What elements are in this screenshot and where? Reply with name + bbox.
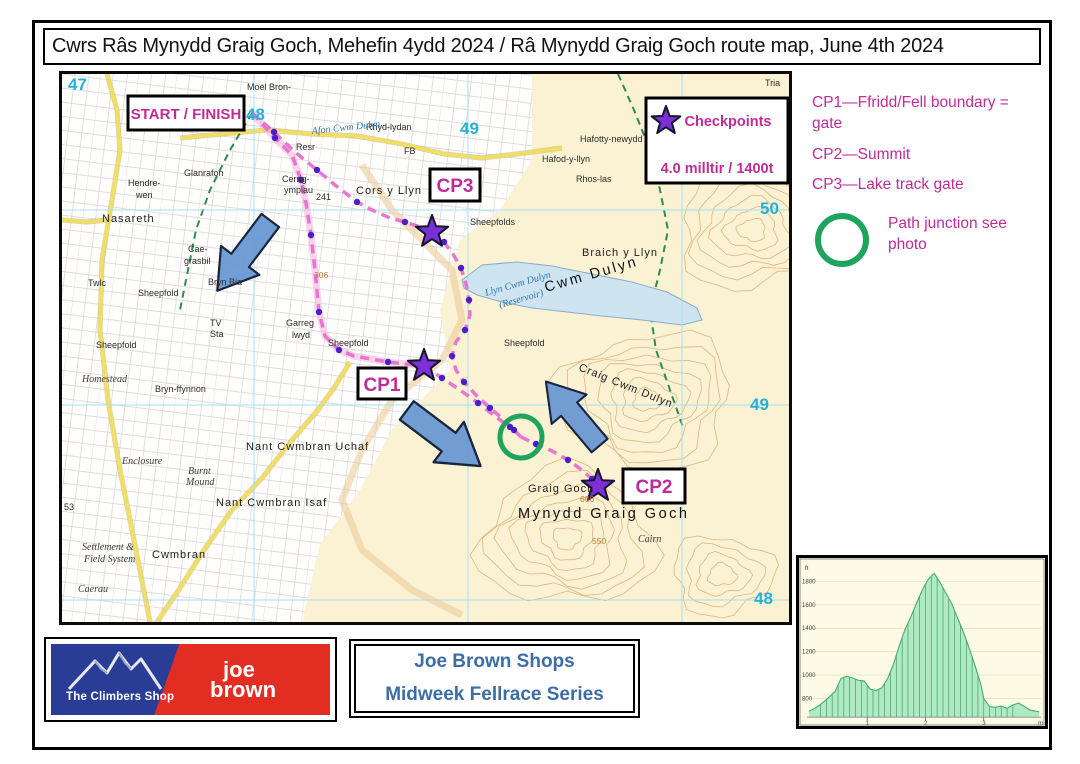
elevation-chart-canvas: 80010001200140016001800ft123m — [799, 558, 1045, 726]
series-box: Joe Brown Shops Midweek Fellrace Series — [349, 639, 640, 718]
map-label: ympiau — [284, 185, 313, 195]
map-label: Mynydd Graig Goch — [518, 506, 689, 522]
map-label: Hafod-y-llyn — [542, 154, 590, 164]
checkpoint-notes: CP1—Ffridd/Fell boundary = gate CP2—Summ… — [812, 92, 1056, 267]
map-label: Nasareth — [102, 213, 155, 225]
cp1-marker-box: CP1 — [358, 368, 406, 399]
map-label: Cwmbran — [152, 549, 206, 561]
y-tick-label: 800 — [802, 695, 813, 702]
start-finish-marker: START / FINISH — [128, 96, 244, 130]
cp2-note: CP2—Summit — [812, 144, 1056, 165]
start-finish-label: START / FINISH — [131, 106, 242, 123]
y-tick-label: 1200 — [802, 649, 816, 656]
map-label: Sheepfolds — [470, 217, 516, 227]
map-label: Glanrafon — [184, 168, 224, 178]
y-tick-label: 1400 — [802, 625, 816, 632]
map-label: Resr — [296, 142, 315, 152]
legend-title: Checkpoints — [684, 114, 771, 130]
y-axis-unit: ft — [805, 565, 809, 572]
series-title: Joe Brown Shops — [414, 651, 574, 673]
map-label: 606 — [580, 494, 594, 504]
map-label: Homestead — [81, 374, 128, 385]
cp3-marker-box: CP3 — [430, 169, 480, 201]
map-label: lwyd — [292, 330, 310, 340]
y-tick-label: 1800 — [802, 578, 816, 585]
sponsor-logo-box: The Climbers Shop joe brown — [44, 637, 337, 722]
map-label: Nant Cwmbran Isaf — [216, 497, 327, 509]
map-label: Burnt — [188, 466, 211, 477]
map-label: Nant Cwmbran Uchaf — [246, 441, 369, 453]
map-label: Cerrig- — [282, 174, 310, 184]
cp1-note: CP1—Ffridd/Fell boundary = gate — [812, 92, 1030, 135]
mountain-icon — [61, 647, 181, 693]
map-label: Sta — [210, 329, 224, 339]
map-label: Settlement & — [82, 542, 134, 553]
cp3-label: CP3 — [437, 176, 474, 197]
grid-number: 48 — [246, 105, 265, 124]
map-label: Rhos-las — [576, 174, 612, 184]
grid-number: 49 — [460, 119, 479, 138]
x-tick-label: 2 — [924, 720, 928, 726]
map-label: Tria — [765, 78, 780, 88]
map-label: FB — [404, 146, 416, 156]
x-tick-label: 1 — [866, 720, 870, 726]
map-label: 53 — [64, 502, 74, 512]
x-axis-unit: m — [1038, 720, 1043, 726]
map-label: Moel Bron- — [247, 82, 291, 92]
cp1-label: CP1 — [364, 375, 401, 396]
map-label: Enclosure — [121, 456, 163, 467]
junction-note: Path junction see photo — [888, 213, 1040, 256]
map-label: Bryn-ffynnon — [155, 384, 206, 394]
map-label: 306 — [314, 270, 328, 280]
map-label: Cors y Llyn — [356, 185, 422, 197]
series-box-inner: Joe Brown Shops Midweek Fellrace Series — [354, 644, 635, 713]
map-label: Sheepfold — [96, 340, 137, 350]
checkpoints-legend: Checkpoints 4.0 milltir / 1400t — [646, 98, 788, 183]
map-label: Bryn Bia — [208, 277, 242, 287]
legend-distance: 4.0 milltir / 1400t — [661, 161, 774, 177]
map-label: grasbil — [184, 256, 211, 266]
map-label: Hendre- — [128, 178, 161, 188]
y-tick-label: 1000 — [802, 672, 816, 679]
map-label: Cairn — [638, 534, 661, 545]
map-label: Mound — [185, 477, 215, 488]
route-map: Moel Bron-Rhyd-lydanFron-DulynHafotty-ne… — [59, 71, 792, 625]
map-label: Twlc — [88, 278, 107, 288]
map-label: Sheepfold — [504, 338, 545, 348]
map-label: Braich y Llyn — [582, 247, 658, 259]
climbers-shop-joe-brown-logo: The Climbers Shop joe brown — [51, 644, 330, 715]
grid-number: 49 — [750, 395, 769, 414]
x-tick-label: 3 — [982, 720, 986, 726]
map-label: 241 — [316, 192, 331, 202]
elevation-profile: 80010001200140016001800ft123m — [796, 555, 1048, 729]
joe-brown-line2: brown — [210, 680, 276, 700]
map-label: Sheepfold — [328, 338, 369, 348]
map-label: Garreg — [286, 318, 314, 328]
title-box: Cwrs Râs Mynydd Graig Goch, Mehefin 4ydd… — [43, 28, 1041, 65]
path-junction-icon — [815, 213, 869, 267]
junction-note-row: Path junction see photo — [812, 213, 1056, 267]
y-tick-label: 1600 — [802, 602, 816, 609]
grid-number: 48 — [754, 589, 773, 608]
cp3-note: CP3—Lake track gate — [812, 174, 1056, 195]
map-label: Field System — [83, 554, 135, 565]
grid-number: 47 — [68, 75, 87, 94]
joe-brown-label: joe brown — [210, 659, 276, 699]
map-label: Hafotty-newydd — [580, 134, 643, 144]
map-label: 550 — [592, 536, 606, 546]
map-label: Cae- — [188, 244, 208, 254]
map-label: wen — [135, 190, 153, 200]
map-canvas: Moel Bron-Rhyd-lydanFron-DulynHafotty-ne… — [62, 74, 789, 622]
page-title: Cwrs Râs Mynydd Graig Goch, Mehefin 4ydd… — [52, 35, 944, 58]
climbers-shop-label: The Climbers Shop — [66, 691, 174, 703]
map-label: TV — [210, 318, 222, 328]
cp2-label: CP2 — [636, 477, 673, 498]
grid-number: 50 — [760, 199, 779, 218]
map-label: Caerau — [78, 584, 108, 595]
series-subtitle: Midweek Fellrace Series — [385, 684, 604, 706]
cp2-marker-box: CP2 — [623, 469, 685, 503]
map-label: Sheepfold — [138, 288, 179, 298]
